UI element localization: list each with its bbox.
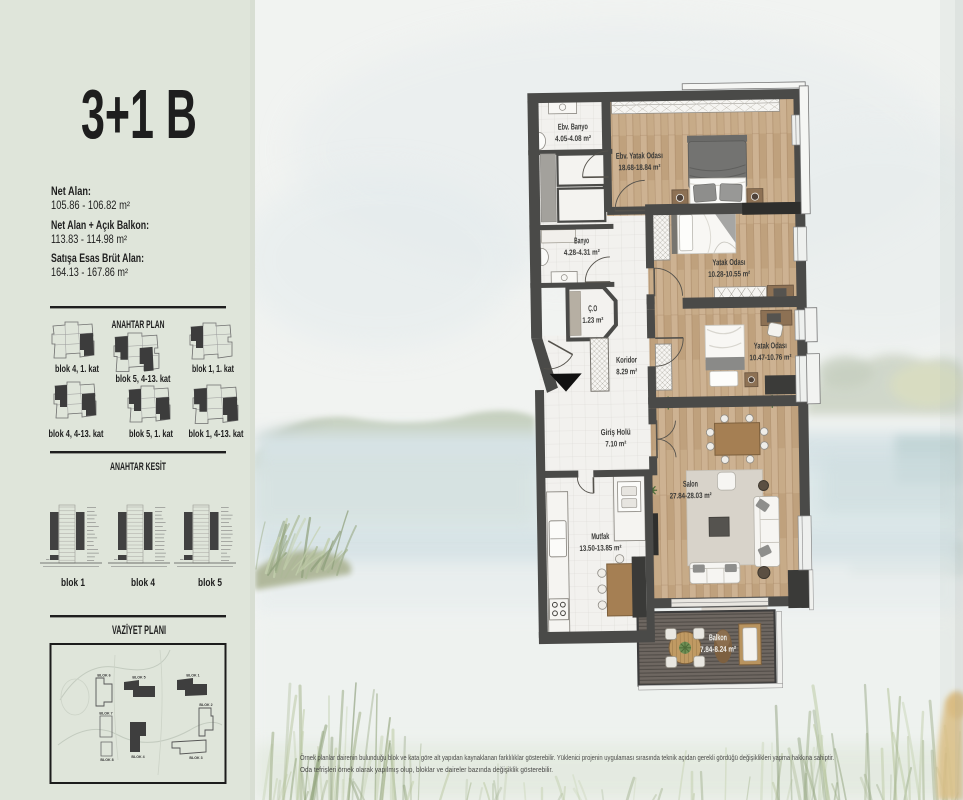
svg-text:Oda tefrişleri örnek olarak ya: Oda tefrişleri örnek olarak yapılmış olu… [300, 765, 553, 774]
svg-text:BLOK 3: BLOK 3 [189, 756, 202, 760]
svg-text:113.83 - 114.98 m²: 113.83 - 114.98 m² [51, 234, 127, 246]
svg-text:BLOK 2: BLOK 2 [199, 703, 212, 707]
svg-text:164.13 - 167.86 m²: 164.13 - 167.86 m² [51, 267, 128, 279]
svg-text:Net Alan + Açık Balkon:: Net Alan + Açık Balkon: [51, 220, 149, 232]
svg-text:4.28-4.31 m²: 4.28-4.31 m² [564, 248, 600, 258]
svg-text:VAZİYET PLANI: VAZİYET PLANI [112, 622, 166, 637]
svg-text:blok 1, 1. kat: blok 1, 1. kat [192, 364, 234, 375]
svg-text:Ebv. Yatak Odası: Ebv. Yatak Odası [616, 150, 663, 161]
svg-text:Koridor: Koridor [616, 355, 638, 365]
svg-text:ANAHTAR PLAN: ANAHTAR PLAN [112, 319, 165, 331]
svg-text:7.84-8.24 m²: 7.84-8.24 m² [700, 644, 736, 654]
svg-text:ANAHTAR KESİT: ANAHTAR KESİT [110, 460, 166, 473]
svg-text:105.86 - 106.82 m²: 105.86 - 106.82 m² [51, 200, 130, 212]
svg-text:Yatak Odası: Yatak Odası [754, 340, 787, 351]
svg-text:BLOK 4: BLOK 4 [131, 755, 144, 759]
svg-text:4.05-4.08 m²: 4.05-4.08 m² [555, 134, 591, 144]
svg-text:blok 1: blok 1 [61, 577, 85, 589]
svg-text:Örnek planlar dairenin bulundu: Örnek planlar dairenin bulunduğu blok ve… [300, 753, 834, 762]
svg-text:Ebv. Banyo: Ebv. Banyo [558, 121, 588, 131]
svg-text:Yatak Odası: Yatak Odası [712, 257, 745, 268]
svg-text:1.23 m²: 1.23 m² [582, 316, 603, 325]
svg-text:8.29 m²: 8.29 m² [616, 367, 637, 376]
svg-text:10.28-10.55 m²: 10.28-10.55 m² [708, 269, 750, 279]
svg-text:7.10 m²: 7.10 m² [605, 439, 626, 448]
svg-text:Giriş Holü: Giriş Holü [601, 427, 631, 437]
svg-text:BLOK 6: BLOK 6 [97, 674, 110, 678]
svg-text:blok 5: blok 5 [198, 577, 222, 589]
svg-text:BLOK 1: BLOK 1 [186, 674, 199, 678]
svg-text:13.50-13.85 m²: 13.50-13.85 m² [579, 543, 621, 553]
svg-text:Salon: Salon [683, 479, 698, 489]
svg-text:Satışa Esas Brüt Alan:: Satışa Esas Brüt Alan: [51, 253, 144, 265]
svg-text:Net Alan:: Net Alan: [51, 186, 91, 198]
svg-text:blok 4, 1. kat: blok 4, 1. kat [55, 364, 99, 375]
svg-text:blok 5, 4-13. kat: blok 5, 4-13. kat [116, 374, 171, 385]
svg-text:BLOK 8: BLOK 8 [100, 758, 113, 762]
svg-text:Mutfak: Mutfak [591, 531, 609, 541]
svg-text:blok 1, 4-13. kat: blok 1, 4-13. kat [189, 429, 244, 440]
svg-text:27.84-28.03 m²: 27.84-28.03 m² [670, 491, 712, 501]
svg-text:blok 5, 1. kat: blok 5, 1. kat [129, 429, 173, 440]
svg-text:BLOK 5: BLOK 5 [132, 676, 145, 680]
svg-text:blok 4: blok 4 [131, 577, 156, 589]
svg-text:BLOK 7: BLOK 7 [99, 712, 112, 716]
svg-text:10.47-10.76 m²: 10.47-10.76 m² [749, 353, 791, 363]
svg-text:18.68-18.84 m²: 18.68-18.84 m² [618, 163, 660, 173]
svg-text:Ç.O: Ç.O [588, 303, 597, 313]
svg-text:Balkon: Balkon [709, 632, 727, 642]
svg-text:blok 4, 4-13. kat: blok 4, 4-13. kat [49, 429, 104, 440]
svg-text:3+1 B: 3+1 B [81, 75, 197, 153]
svg-text:Banyo: Banyo [574, 235, 589, 245]
